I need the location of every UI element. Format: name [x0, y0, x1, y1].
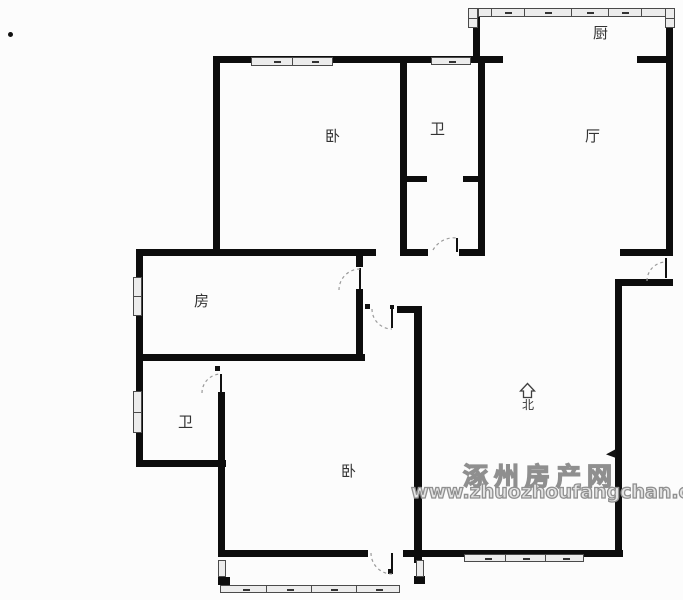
room-label-bedroom-bottom: 卧 — [341, 464, 356, 479]
door-swing-arc — [647, 262, 666, 281]
room-label-room-mid: 房 — [194, 294, 209, 309]
doors-and-compass-overlay — [0, 0, 683, 600]
door-swing-arc — [339, 269, 360, 290]
room-label-bedroom-top: 卧 — [325, 129, 340, 144]
door-swing-arc — [202, 374, 221, 393]
compass-north-label: 北 — [522, 399, 534, 411]
north-arrow-icon — [521, 384, 535, 398]
door-swing-arc — [371, 553, 392, 574]
floor-plan: 厨 厅 卫 卧 房 卫 卧 北 涿州房产网 www.zhuozhoufangch… — [0, 0, 683, 600]
room-label-bath-top: 卫 — [430, 122, 445, 137]
door-swing-arc — [372, 309, 392, 329]
room-label-bath-ensuite: 卫 — [178, 415, 193, 430]
room-label-living: 厅 — [585, 129, 600, 144]
room-label-kitchen: 厨 — [593, 26, 608, 41]
door-swing-arc — [433, 238, 457, 250]
watermark-site-url: www.zhuozhoufangchan.com — [411, 481, 683, 503]
